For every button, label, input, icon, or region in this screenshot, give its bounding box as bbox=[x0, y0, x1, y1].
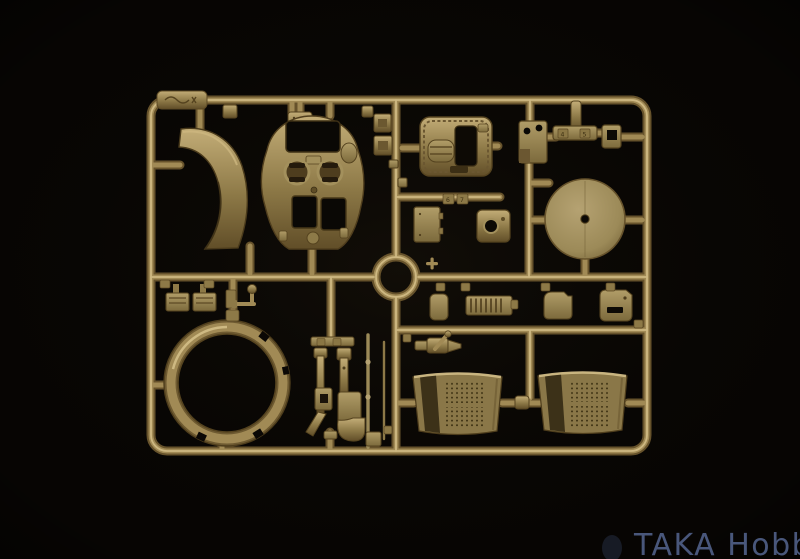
sprue-photo: 4 5 6 7 bbox=[0, 0, 800, 559]
photo-vignette bbox=[0, 0, 800, 559]
photo-canvas: 4 5 6 7 bbox=[0, 0, 800, 559]
watermark-text: TAKA Hobby bbox=[633, 528, 800, 559]
